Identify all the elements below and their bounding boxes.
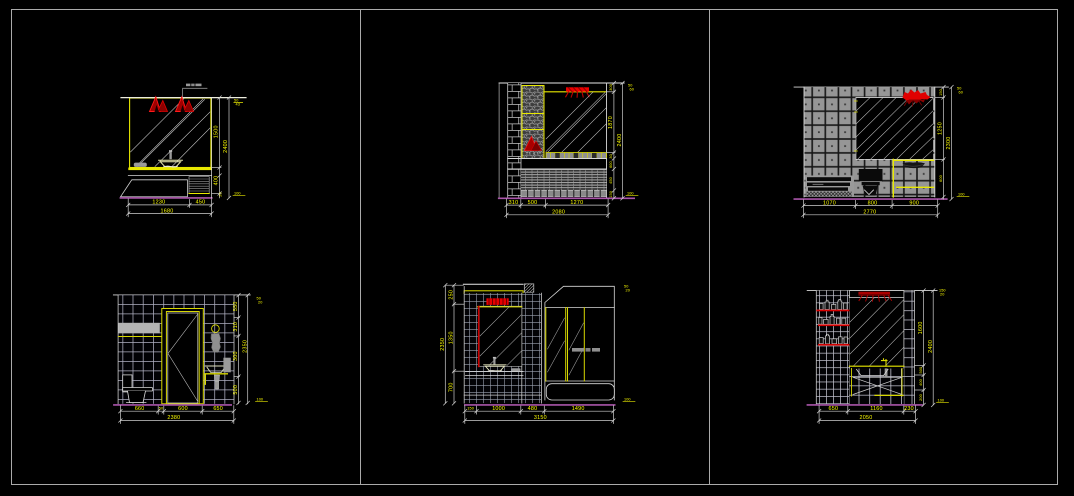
svg-text:660: 660 bbox=[135, 406, 145, 412]
svg-text:200: 200 bbox=[919, 394, 923, 401]
svg-text:1250: 1250 bbox=[938, 122, 944, 135]
svg-text:650: 650 bbox=[829, 406, 839, 412]
svg-text:60: 60 bbox=[959, 91, 963, 95]
svg-text:1600: 1600 bbox=[918, 321, 924, 334]
svg-text:2350: 2350 bbox=[242, 340, 248, 353]
svg-text:100: 100 bbox=[234, 192, 241, 196]
svg-text:450: 450 bbox=[609, 177, 613, 184]
svg-text:2050: 2050 bbox=[860, 415, 873, 421]
svg-text:300: 300 bbox=[609, 84, 613, 91]
svg-text:800: 800 bbox=[868, 200, 878, 206]
svg-text:400: 400 bbox=[213, 176, 219, 186]
svg-text:150: 150 bbox=[467, 407, 474, 411]
svg-text:2380: 2380 bbox=[167, 415, 180, 421]
svg-text:480: 480 bbox=[528, 406, 538, 412]
svg-text:60: 60 bbox=[630, 88, 634, 92]
svg-text:500: 500 bbox=[528, 200, 538, 206]
svg-text:650: 650 bbox=[213, 406, 223, 412]
svg-text:20: 20 bbox=[940, 293, 944, 297]
svg-text:50: 50 bbox=[159, 407, 163, 411]
svg-text:100: 100 bbox=[958, 193, 965, 197]
svg-text:900: 900 bbox=[909, 200, 919, 206]
svg-text:2770: 2770 bbox=[863, 210, 876, 216]
svg-text:450: 450 bbox=[196, 200, 206, 206]
svg-text:150: 150 bbox=[609, 191, 613, 198]
svg-text:2350: 2350 bbox=[440, 338, 446, 351]
svg-text:500: 500 bbox=[233, 385, 239, 395]
svg-text:600: 600 bbox=[939, 175, 943, 182]
svg-text:1270: 1270 bbox=[570, 200, 583, 206]
svg-text:2400: 2400 bbox=[617, 134, 623, 147]
svg-text:1230: 1230 bbox=[152, 200, 165, 206]
svg-text:100: 100 bbox=[938, 399, 945, 403]
svg-text:43: 43 bbox=[236, 103, 240, 107]
svg-text:600: 600 bbox=[178, 406, 188, 412]
svg-text:100: 100 bbox=[627, 192, 634, 196]
svg-text:3150: 3150 bbox=[534, 415, 547, 421]
svg-text:20: 20 bbox=[219, 192, 223, 196]
svg-text:1500: 1500 bbox=[213, 125, 219, 138]
svg-text:2400: 2400 bbox=[223, 140, 229, 153]
svg-text:30: 30 bbox=[609, 154, 613, 158]
svg-text:2080: 2080 bbox=[552, 210, 565, 216]
svg-text:1680: 1680 bbox=[161, 208, 174, 214]
svg-text:300: 300 bbox=[233, 351, 239, 361]
svg-text:1070: 1070 bbox=[823, 200, 836, 206]
svg-text:1490: 1490 bbox=[572, 406, 585, 412]
svg-text:550: 550 bbox=[233, 301, 239, 311]
svg-text:400: 400 bbox=[919, 379, 923, 386]
svg-text:500: 500 bbox=[919, 367, 923, 374]
svg-text:310: 310 bbox=[233, 322, 239, 332]
svg-text:700: 700 bbox=[448, 382, 454, 392]
svg-text:1870: 1870 bbox=[608, 116, 614, 129]
svg-text:600: 600 bbox=[609, 161, 613, 168]
svg-text:1160: 1160 bbox=[870, 406, 883, 412]
svg-text:20: 20 bbox=[258, 301, 262, 305]
svg-text:230: 230 bbox=[904, 406, 914, 412]
svg-text:1000: 1000 bbox=[492, 406, 505, 412]
svg-text:310: 310 bbox=[509, 200, 519, 206]
svg-text:2300: 2300 bbox=[946, 137, 952, 150]
svg-text:250: 250 bbox=[448, 290, 454, 300]
svg-text:100: 100 bbox=[624, 398, 631, 402]
svg-text:20: 20 bbox=[626, 289, 630, 293]
svg-text:100: 100 bbox=[257, 398, 264, 402]
svg-text:150: 150 bbox=[939, 89, 943, 96]
svg-text:1350: 1350 bbox=[448, 331, 454, 344]
svg-text:2400: 2400 bbox=[928, 340, 934, 353]
